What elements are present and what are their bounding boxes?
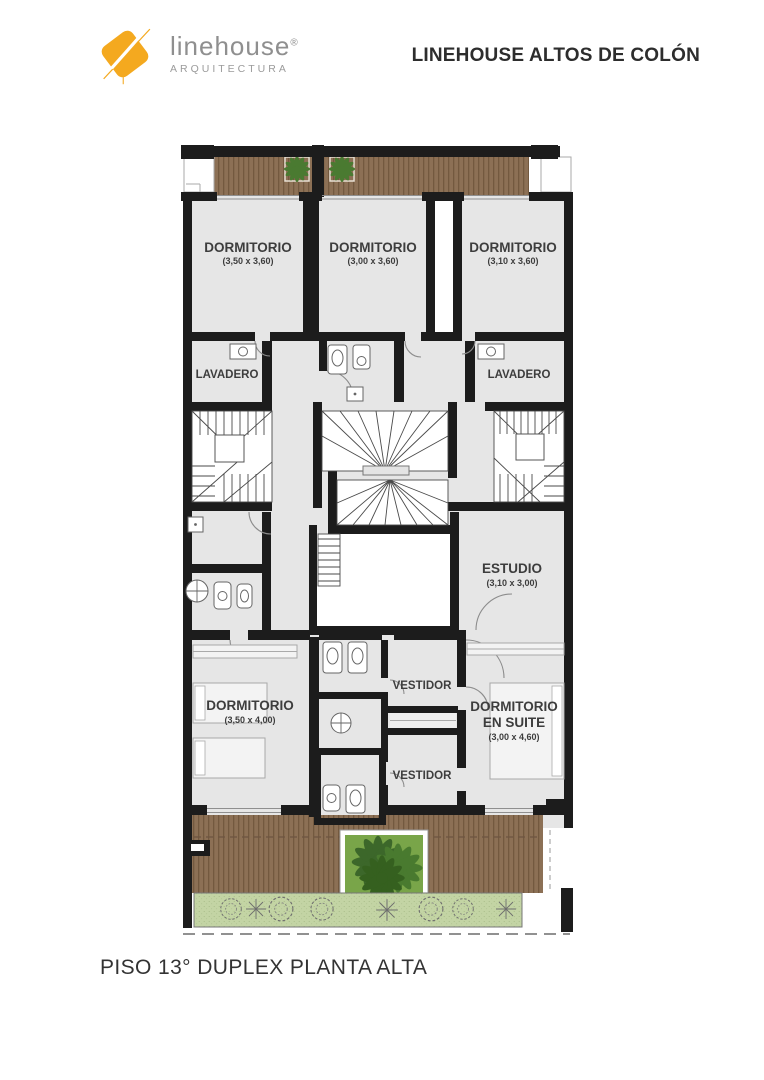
brand-name: linehouse® bbox=[170, 33, 299, 59]
room-label-dormitorio-2: DORMITORIO bbox=[329, 240, 417, 255]
room-dims-dormitorio-2: (3,00 x 3,60) bbox=[347, 256, 398, 266]
room-dims-dormitorio-4: (3,50 x 4,00) bbox=[224, 715, 275, 725]
double-height-void bbox=[317, 534, 450, 626]
air-shaft bbox=[435, 201, 453, 335]
room-label-estudio: ESTUDIO bbox=[482, 561, 542, 576]
floor-plan-container: DORMITORIO (3,50 x 3,60) DORMITORIO (3,0… bbox=[178, 140, 598, 940]
plan-title: PISO 13° DUPLEX PLANTA ALTA bbox=[100, 956, 427, 980]
project-title: LINEHOUSE ALTOS DE COLÓN bbox=[412, 45, 700, 67]
room-label-vestidor-2: VESTIDOR bbox=[393, 770, 452, 782]
room-dims-dormitorio-3: (3,10 x 3,60) bbox=[487, 256, 538, 266]
deck-utility-box bbox=[191, 844, 204, 851]
registered-mark: ® bbox=[290, 37, 298, 48]
room-dims-estudio: (3,10 x 3,00) bbox=[486, 578, 537, 588]
room-label-suite-2: EN SUITE bbox=[483, 715, 545, 730]
room-label-lavadero-left: LAVADERO bbox=[196, 369, 259, 381]
stair-handrail bbox=[363, 466, 409, 475]
linehouse-logo-icon bbox=[93, 22, 157, 86]
room-label-dormitorio-3: DORMITORIO bbox=[469, 240, 557, 255]
room-label-vestidor-1: VESTIDOR bbox=[393, 680, 452, 692]
room-label-lavadero-right: LAVADERO bbox=[488, 369, 551, 381]
top-deck bbox=[214, 152, 529, 196]
room-label-dormitorio-1: DORMITORIO bbox=[204, 240, 292, 255]
room-dims-suite: (3,00 x 4,60) bbox=[488, 732, 539, 742]
room-label-suite: DORMITORIO bbox=[470, 699, 558, 714]
wood-deck-top bbox=[214, 152, 529, 196]
star-plant-icon bbox=[376, 899, 398, 921]
brand-tagline: ARQUITECTURA bbox=[170, 63, 299, 75]
star-plant-icon bbox=[496, 899, 516, 919]
planter-strip bbox=[183, 893, 570, 934]
floor-plan: DORMITORIO (3,50 x 3,60) DORMITORIO (3,0… bbox=[178, 140, 598, 940]
star-plant-icon bbox=[246, 899, 266, 919]
bottom-terrace bbox=[192, 815, 550, 901]
room-label-dormitorio-4: DORMITORIO bbox=[206, 698, 294, 713]
brand-logo: linehouse® ARQUITECTURA bbox=[93, 22, 299, 86]
room-dims-dormitorio-1: (3,50 x 3,60) bbox=[222, 256, 273, 266]
